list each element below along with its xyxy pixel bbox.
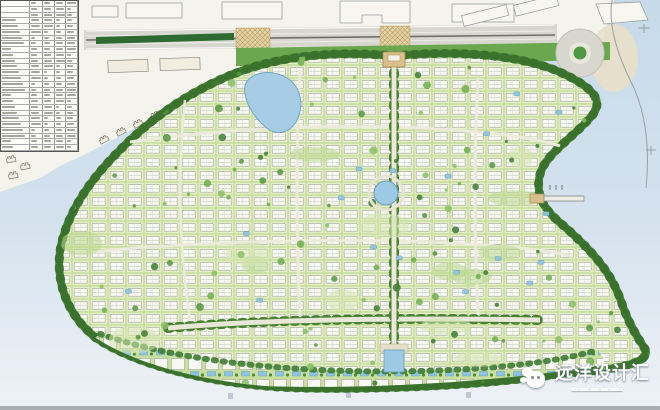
table-cell: [30, 145, 43, 151]
master-plan-screenshot: 远洋设计汇: [0, 0, 660, 410]
east-gate: [530, 194, 544, 203]
watermark: 远洋设计汇: [519, 361, 657, 405]
site-plan-canvas: [0, 0, 660, 410]
central-pond: [374, 181, 398, 205]
watermark-label: 远洋设计汇: [555, 361, 650, 387]
intersection-hatch-west: [236, 28, 270, 49]
indicator-table: [0, 0, 79, 152]
south-axis-pool: [384, 350, 404, 372]
cloud-mascot-icon: [519, 365, 549, 395]
table-cell: [1, 145, 30, 151]
table-cell: [66, 145, 78, 151]
frame-bottom-edge: [0, 406, 660, 410]
table-cell: [43, 145, 55, 151]
table-row: [1, 145, 78, 151]
watermark-subline: [571, 388, 623, 391]
intersection-hatch-entry: [380, 26, 410, 47]
roundabout-green-center: [574, 47, 587, 60]
table-cell: [55, 145, 67, 151]
